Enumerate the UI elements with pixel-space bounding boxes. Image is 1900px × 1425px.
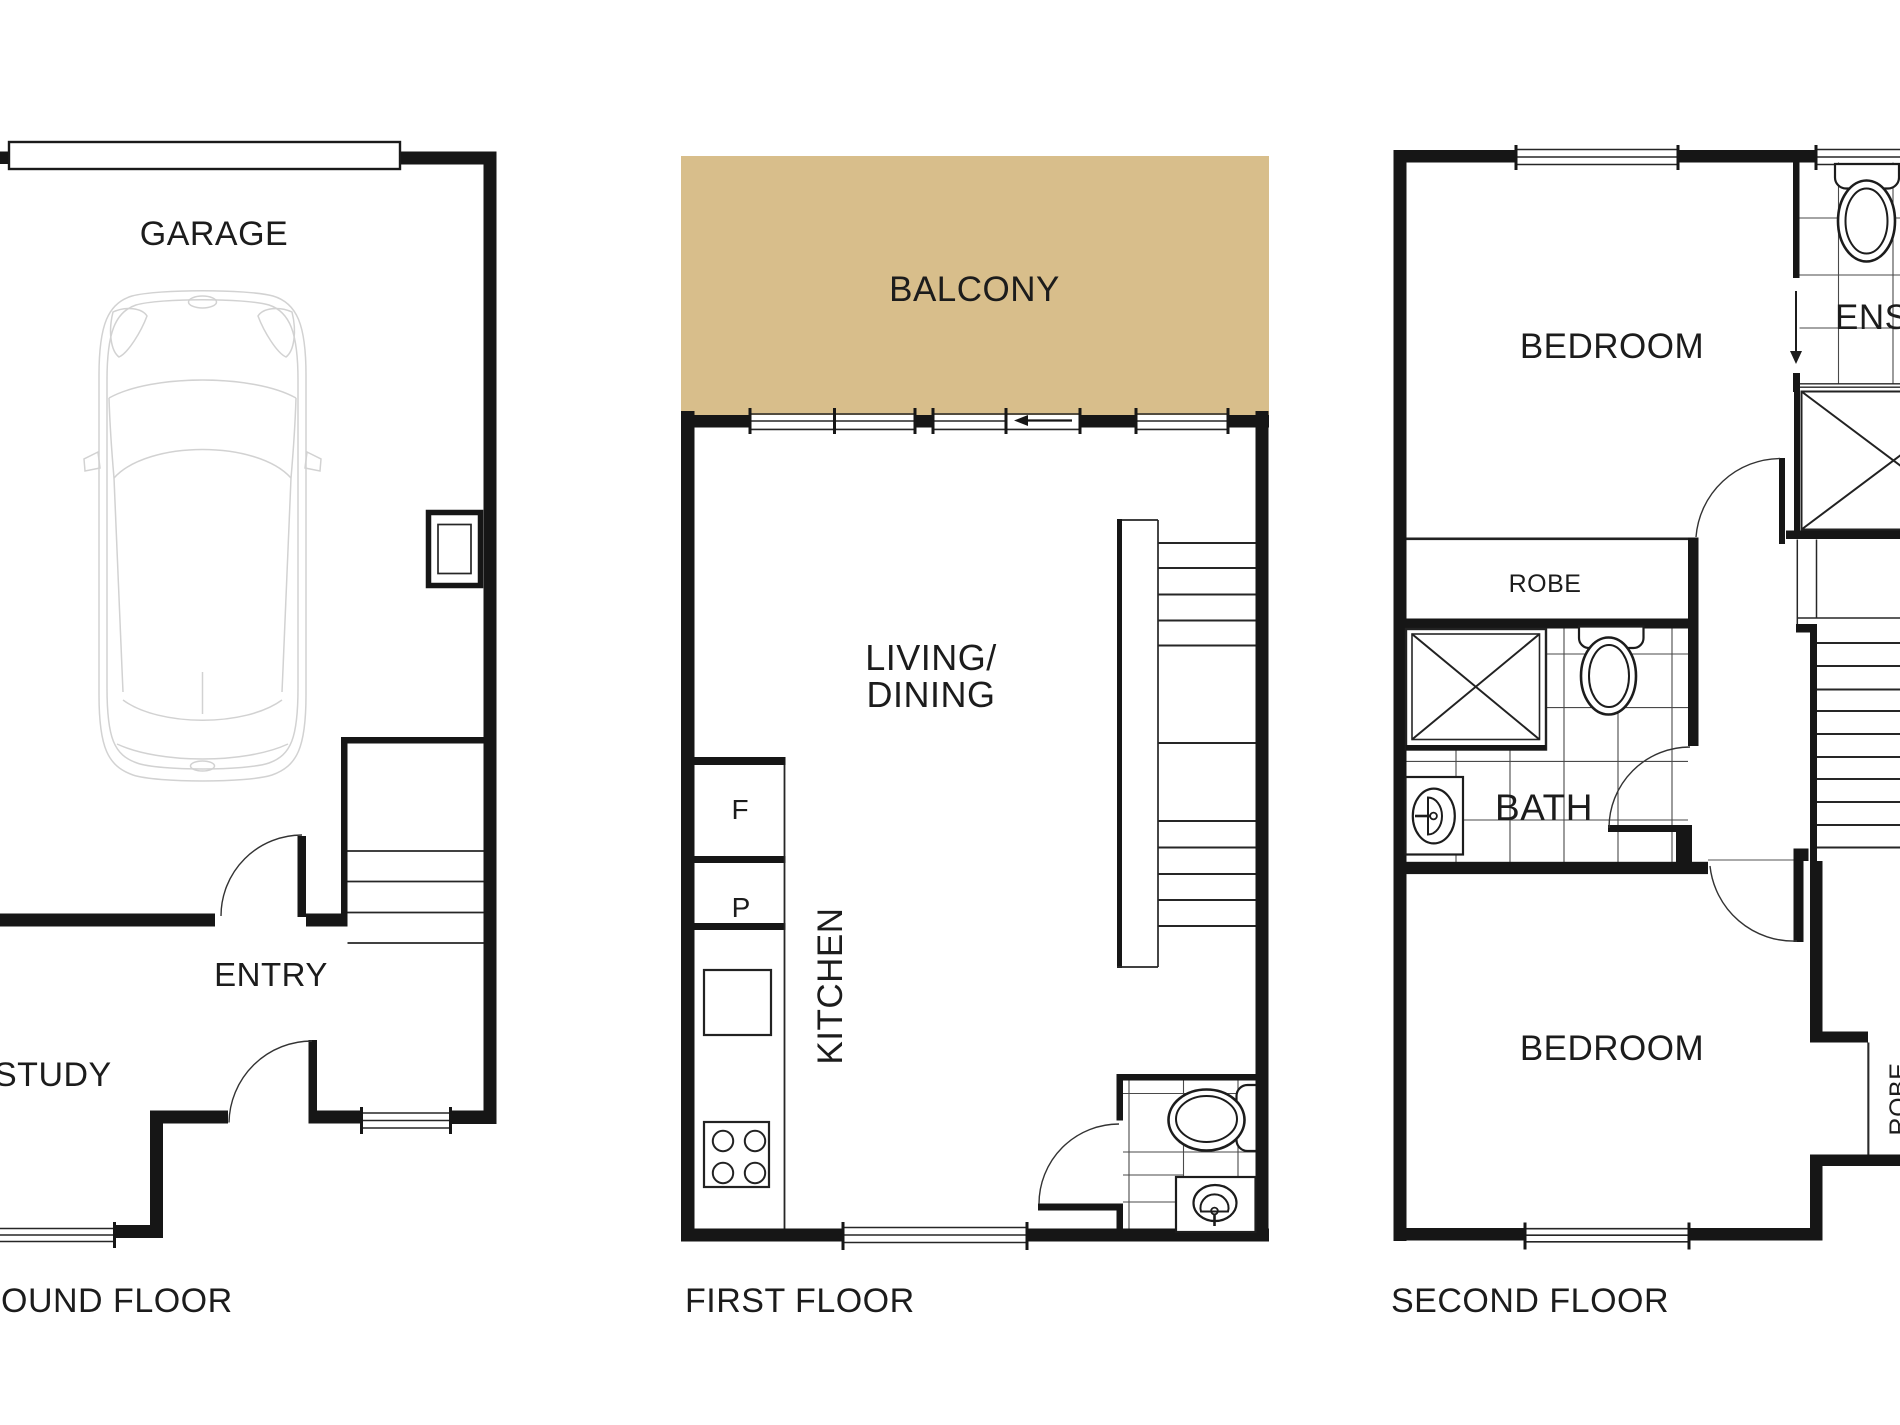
svg-text:P: P <box>732 892 751 923</box>
svg-text:GARAGE: GARAGE <box>140 215 288 253</box>
svg-text:GROUND FLOOR: GROUND FLOOR <box>0 1282 233 1320</box>
svg-text:ROBE: ROBE <box>1509 570 1582 598</box>
svg-text:ENTRY: ENTRY <box>214 956 328 993</box>
svg-text:SECOND FLOOR: SECOND FLOOR <box>1391 1282 1669 1320</box>
svg-text:LIVING/: LIVING/ <box>865 637 997 678</box>
svg-text:ENSUITE: ENSUITE <box>1835 298 1900 337</box>
svg-text:BEDROOM: BEDROOM <box>1520 1029 1704 1068</box>
svg-text:BALCONY: BALCONY <box>889 270 1060 309</box>
svg-text:BEDROOM: BEDROOM <box>1520 327 1704 366</box>
svg-text:ROBE: ROBE <box>1885 1063 1900 1136</box>
svg-text:KITCHEN: KITCHEN <box>811 907 850 1064</box>
svg-text:BATH: BATH <box>1495 787 1593 828</box>
svg-text:FIRST FLOOR: FIRST FLOOR <box>685 1282 915 1320</box>
svg-text:F: F <box>731 794 748 825</box>
svg-text:STUDY: STUDY <box>0 1056 112 1094</box>
svg-text:DINING: DINING <box>867 674 996 715</box>
